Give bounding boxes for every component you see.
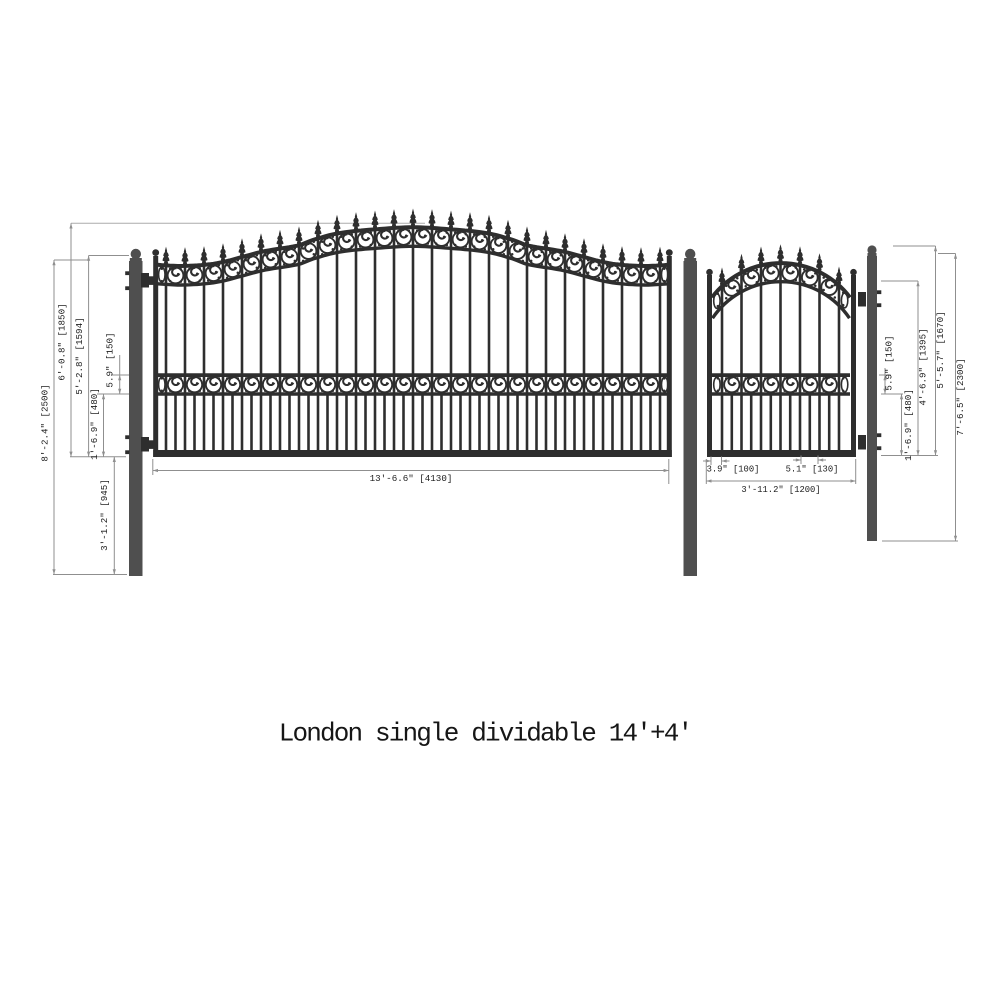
svg-text:5.1" [130]: 5.1" [130] xyxy=(786,465,839,475)
svg-text:5'-5.7" [1670]: 5'-5.7" [1670] xyxy=(935,311,946,388)
svg-text:3.9" [100]: 3.9" [100] xyxy=(707,465,760,475)
svg-text:8'-2.4" [2500]: 8'-2.4" [2500] xyxy=(40,384,51,461)
svg-text:3'-11.2" [1200]: 3'-11.2" [1200] xyxy=(741,485,820,495)
svg-text:4'-6.9" [1395]: 4'-6.9" [1395] xyxy=(918,328,929,405)
svg-text:1'-6.9" [480]: 1'-6.9" [480] xyxy=(903,389,914,461)
svg-text:5'-2.8" [1594]: 5'-2.8" [1594] xyxy=(74,317,85,394)
svg-text:London single dividable 14′+4′: London single dividable 14′+4′ xyxy=(279,719,692,749)
svg-text:1'-6.9" [480]: 1'-6.9" [480] xyxy=(89,388,100,460)
svg-text:6'-0.8" [1850]: 6'-0.8" [1850] xyxy=(57,303,68,380)
svg-text:3'-1.2" [945]: 3'-1.2" [945] xyxy=(99,479,110,551)
svg-text:5.9" [150]: 5.9" [150] xyxy=(884,335,895,390)
svg-text:13'-6.6" [4130]: 13'-6.6" [4130] xyxy=(370,473,453,484)
svg-text:7'-6.5" [2300]: 7'-6.5" [2300] xyxy=(955,358,966,435)
svg-text:5.9" [150]: 5.9" [150] xyxy=(105,332,116,387)
